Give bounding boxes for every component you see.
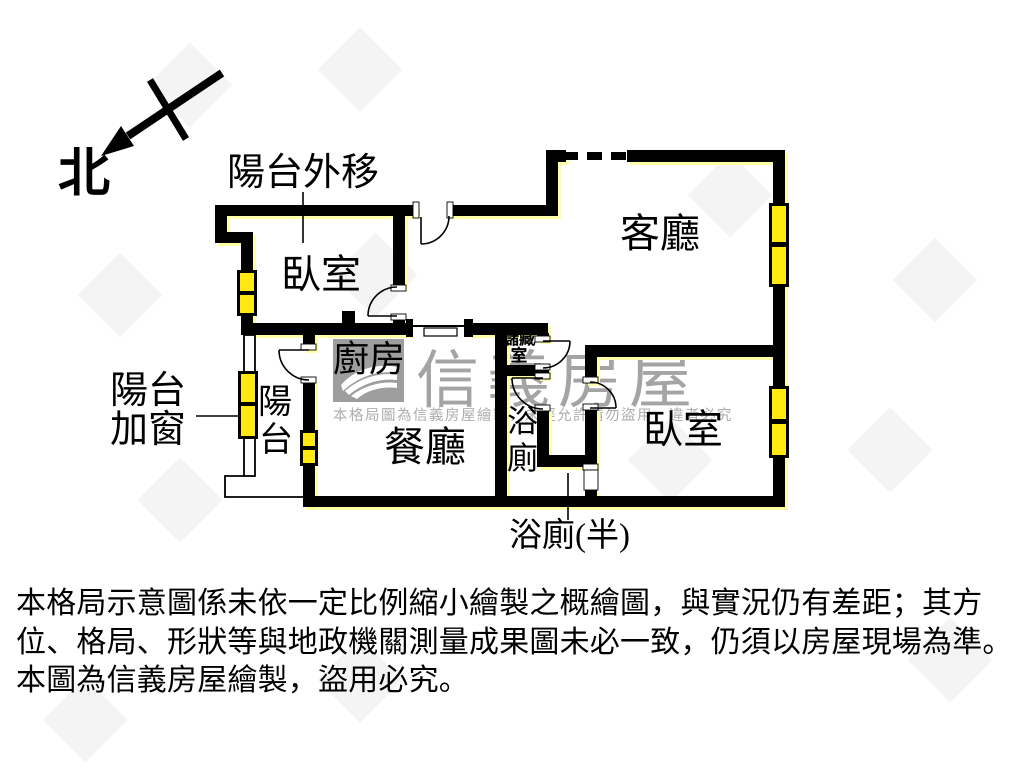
bedroom-right-label: 臥室 — [643, 410, 723, 450]
balcony-label-char1: 陽 — [258, 386, 292, 420]
bedroom-left-label: 臥室 — [281, 255, 361, 295]
north-label: 北 — [58, 149, 110, 201]
doors — [279, 216, 616, 409]
balcony-added-window-line2: 加窗 — [110, 409, 186, 451]
bedroom-right-window — [769, 386, 789, 458]
storage-label: 儲藏 室 — [498, 330, 540, 364]
half-bath-door — [584, 470, 598, 490]
floor-plan-drawing — [0, 0, 1024, 575]
balcony-label-char2: 台 — [259, 424, 293, 458]
dining-balcony-window — [300, 430, 318, 466]
balcony-added-window-label: 陽台 加窗 — [110, 372, 205, 450]
balcony-added-window-line1: 陽台 — [110, 370, 186, 412]
half-bath-label: 浴廁(半) — [509, 520, 630, 553]
balcony-extended-label: 陽台外移 — [227, 154, 379, 192]
counter-window — [406, 319, 473, 337]
bathroom-label-char2: 廁 — [507, 443, 538, 474]
bedroom-left-window — [237, 270, 257, 316]
storage-label-line2: 室 — [511, 346, 528, 365]
disclaimer-line3: 本圖為信義房屋繪製，盜用必究。 — [16, 662, 1016, 701]
living-room-label: 客廳 — [620, 214, 700, 254]
dining-room-label: 餐廳 — [384, 427, 466, 468]
disclaimer-line2: 位、格局、形狀等與地政機關測量成果圖未必一致，仍須以房屋現場為準。 — [16, 624, 1016, 663]
entrance-door — [421, 216, 449, 244]
north-arrow-icon — [101, 73, 222, 156]
kitchen-label: 廚房 — [333, 341, 405, 377]
bathroom-label-char1: 浴 — [507, 406, 538, 437]
floor-plan-image: 信義房屋 本格局圖為信義房屋繪製，未經允許請勿盜用，違者必究 — [0, 0, 1024, 768]
disclaimer-line1: 本格局示意圖係未依一定比例縮小繪製之概繪圖，與實況仍有差距；其方 — [16, 585, 1016, 624]
living-room-window — [769, 203, 789, 287]
balcony-door — [279, 350, 309, 380]
balcony-window — [238, 371, 258, 439]
disclaimer-text: 本格局示意圖係未依一定比例縮小繪製之概繪圖，與實況仍有差距；其方 位、格局、形狀… — [16, 585, 1016, 701]
